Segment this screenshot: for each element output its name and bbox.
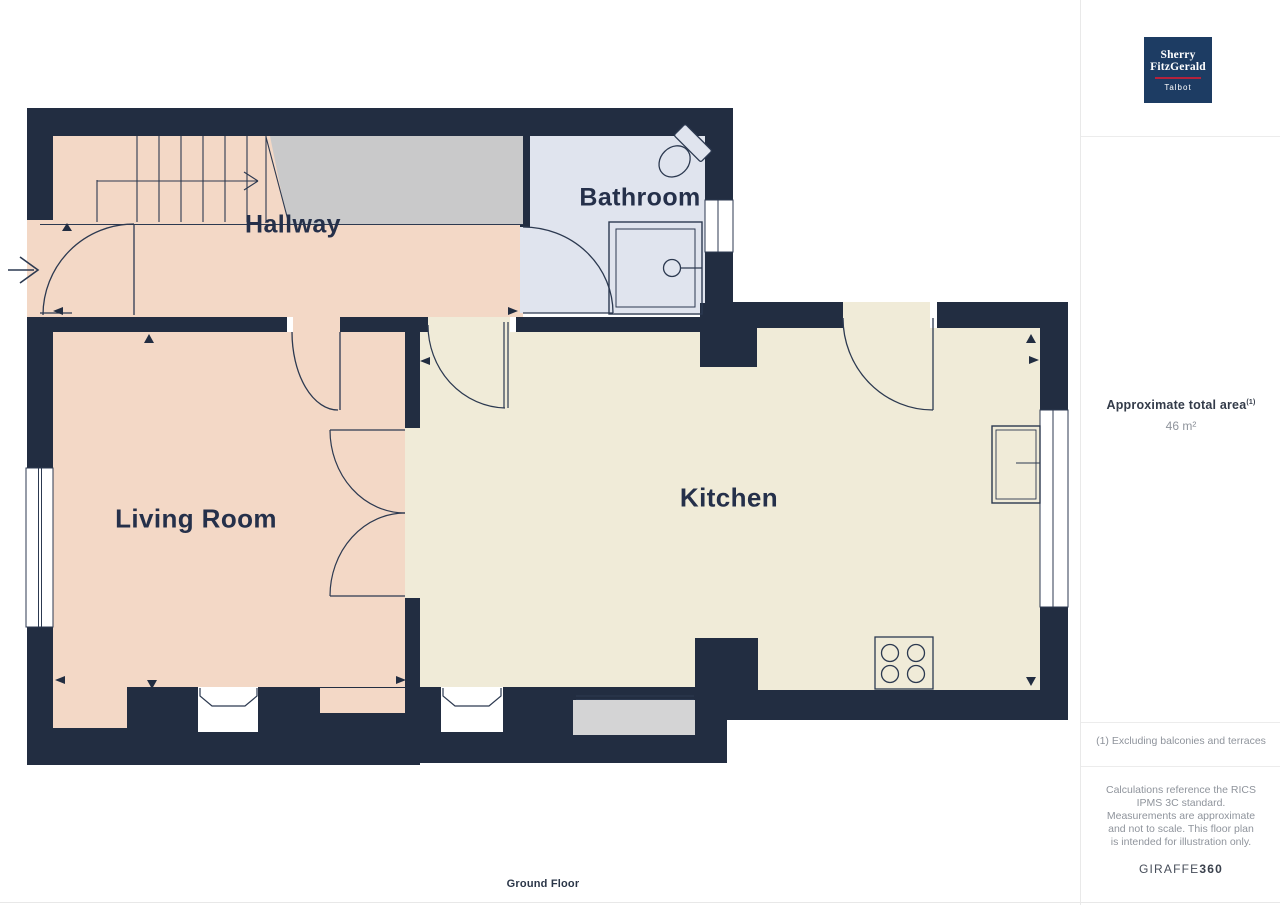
room-label-living-room: Living Room <box>115 504 277 535</box>
floor-plan: Hallway Bathroom Living Room Kitchen Gro… <box>0 0 1080 905</box>
page-border <box>0 902 1280 903</box>
floor-plan-page: Hallway Bathroom Living Room Kitchen Gro… <box>0 0 1280 905</box>
total-area-block: Approximate total area(1) 46 m² <box>1081 398 1280 433</box>
logo-rule <box>1155 77 1201 79</box>
logo-line2: FitzGerald <box>1144 62 1212 74</box>
floor-name-label: Ground Floor <box>507 878 580 890</box>
sidebar-divider <box>1081 722 1280 723</box>
brand-name: GIRAFFE <box>1139 862 1199 876</box>
agency-logo: Sherry FitzGerald Talbot <box>1144 37 1212 103</box>
brand-suffix: 360 <box>1199 862 1223 876</box>
floor-plan-drawing <box>0 0 1080 905</box>
room-label-kitchen: Kitchen <box>680 483 778 514</box>
stove-icon <box>875 637 933 689</box>
room-label-bathroom: Bathroom <box>579 184 700 213</box>
patio-step <box>573 696 695 735</box>
room-label-hallway: Hallway <box>245 211 341 240</box>
area-title-text: Approximate total area <box>1106 398 1246 412</box>
disclaimer-text: Calculations reference the RICS IPMS 3C … <box>1103 784 1259 849</box>
info-sidebar: Sherry FitzGerald Talbot Approximate tot… <box>1080 0 1280 905</box>
area-title: Approximate total area(1) <box>1081 398 1280 412</box>
logo-line1: Sherry <box>1144 50 1212 62</box>
sidebar-divider <box>1081 766 1280 767</box>
logo-subtitle: Talbot <box>1144 83 1212 92</box>
area-footnote: (1) Excluding balconies and terraces <box>1081 735 1280 747</box>
brand-logo: GIRAFFE360 <box>1081 862 1280 876</box>
sidebar-divider <box>1081 136 1280 137</box>
area-value: 46 m² <box>1081 419 1280 433</box>
area-title-superscript: (1) <box>1246 399 1255 406</box>
